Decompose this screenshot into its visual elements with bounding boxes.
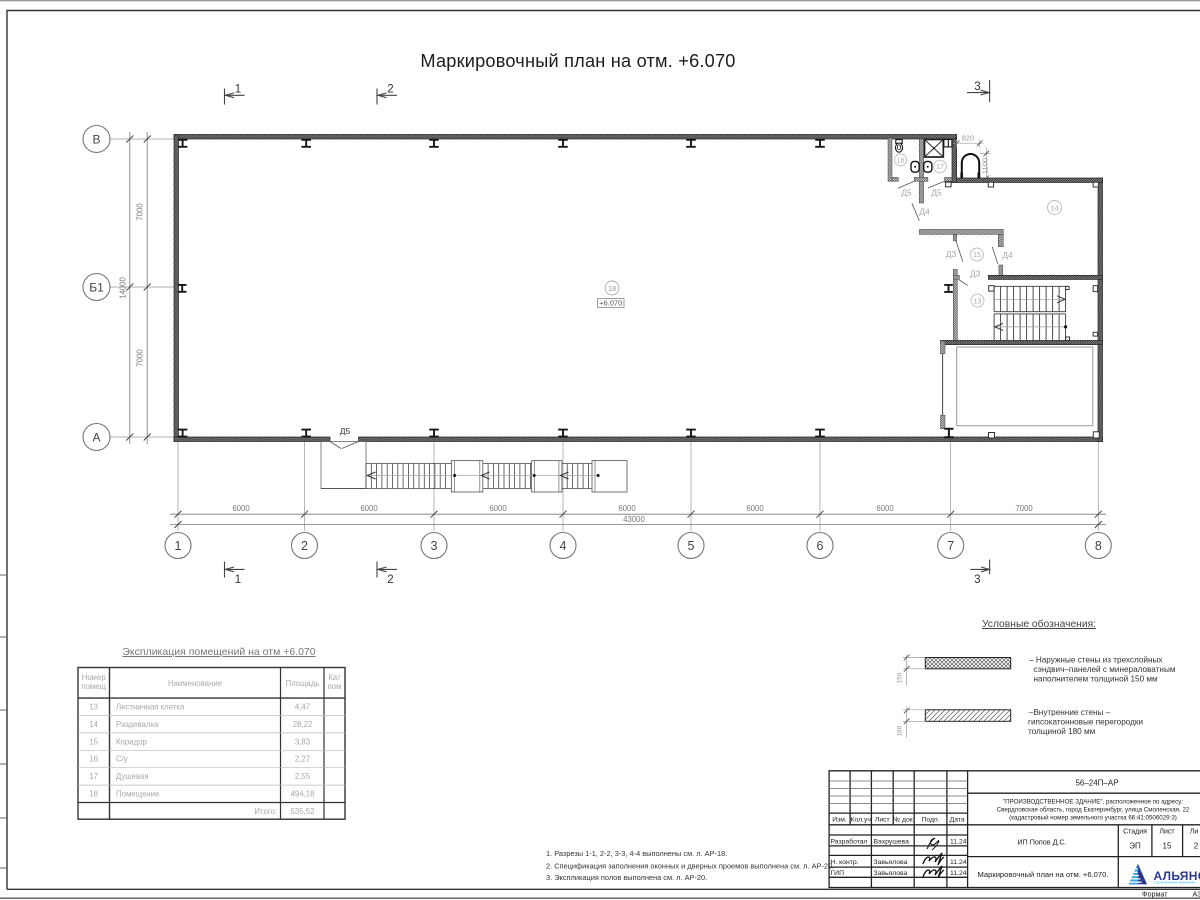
svg-text:3. Экспликация полов выполнена: 3. Экспликация полов выполнена см. л. АР… xyxy=(546,873,707,882)
svg-text:Д4: Д4 xyxy=(1002,250,1013,260)
svg-text:А: А xyxy=(92,431,100,445)
svg-text:Условные обозначения:: Условные обозначения: xyxy=(982,618,1096,630)
svg-text:Душевая: Душевая xyxy=(116,772,149,781)
svg-text:Изм.: Изм. xyxy=(832,817,847,824)
svg-text:5: 5 xyxy=(688,539,695,553)
svg-text:ЭП: ЭП xyxy=(1129,842,1141,851)
svg-text:14: 14 xyxy=(1050,203,1058,212)
svg-text:сэндвич–панелей с минераловатн: сэндвич–панелей с минераловатным xyxy=(1034,665,1176,674)
svg-text:14000: 14000 xyxy=(119,276,128,298)
svg-text:1: 1 xyxy=(235,84,241,96)
svg-text:535,52: 535,52 xyxy=(291,807,315,816)
svg-text:6000: 6000 xyxy=(489,504,507,513)
svg-text:Коридор: Коридор xyxy=(116,737,147,746)
svg-text:Помещение: Помещение xyxy=(116,790,159,799)
svg-text:Завьялова: Завьялова xyxy=(874,859,908,866)
svg-text:1100: 1100 xyxy=(981,158,990,174)
svg-text:Вахрушева: Вахрушева xyxy=(874,838,910,845)
svg-text:1: 1 xyxy=(175,539,182,553)
svg-text:Наименование: Наименование xyxy=(168,679,222,688)
svg-text:14: 14 xyxy=(89,720,98,729)
svg-text:ГИП: ГИП xyxy=(831,870,845,877)
svg-text:4,47: 4,47 xyxy=(295,703,310,712)
svg-text:Номер: Номер xyxy=(82,673,107,682)
svg-text:6: 6 xyxy=(817,539,824,553)
svg-text:18: 18 xyxy=(89,790,98,799)
svg-text:6000: 6000 xyxy=(746,504,764,513)
svg-text:7000: 7000 xyxy=(1015,504,1033,513)
svg-text:ИП Попов Д.С.: ИП Попов Д.С. xyxy=(1017,838,1066,847)
svg-text:18: 18 xyxy=(608,284,616,293)
svg-text:17: 17 xyxy=(89,772,98,781)
svg-text:17: 17 xyxy=(936,164,944,171)
svg-text:№ док.: № док. xyxy=(893,817,915,824)
svg-text:Кат: Кат xyxy=(328,673,341,682)
svg-text:толщиной 180 мм: толщиной 180 мм xyxy=(1028,727,1096,736)
svg-text:3,83: 3,83 xyxy=(295,737,310,746)
svg-text:11.24: 11.24 xyxy=(950,870,967,877)
svg-text:2,55: 2,55 xyxy=(295,772,311,781)
svg-text:15: 15 xyxy=(89,737,98,746)
svg-text:11.24: 11.24 xyxy=(950,838,967,845)
svg-text:–Внутренние стены –: –Внутренние стены – xyxy=(1029,708,1111,717)
svg-text:15: 15 xyxy=(973,252,981,259)
svg-text:Завьялова: Завьялова xyxy=(874,870,908,877)
svg-text:Разработал: Разработал xyxy=(831,837,868,845)
svg-text:А3: А3 xyxy=(1193,889,1200,898)
svg-text:6000: 6000 xyxy=(876,504,894,513)
svg-text:2: 2 xyxy=(301,539,308,553)
svg-text:11.24: 11.24 xyxy=(950,859,967,866)
svg-text:Формат: Формат xyxy=(1142,889,1168,898)
svg-text:Стадия: Стадия xyxy=(1123,829,1147,836)
svg-text:2,27: 2,27 xyxy=(295,755,310,764)
svg-text:15: 15 xyxy=(1163,842,1172,851)
svg-text:Б1: Б1 xyxy=(89,281,104,295)
svg-text:7000: 7000 xyxy=(136,203,145,221)
svg-text:Лестничная клетка: Лестничная клетка xyxy=(116,703,185,712)
svg-text:180: 180 xyxy=(897,725,904,736)
svg-text:строительная компания: строительная компания xyxy=(1154,880,1196,884)
svg-text:6000: 6000 xyxy=(360,504,378,513)
svg-text:(кадастровый номер земельного: (кадастровый номер земельного участка 66… xyxy=(1009,815,1177,822)
svg-text:гипсокатонновые перегородки: гипсокатонновые перегородки xyxy=(1028,718,1143,727)
svg-text:3: 3 xyxy=(974,81,980,93)
svg-text:Свердловская область, город Ек: Свердловская область, город Екатеринбург… xyxy=(997,807,1190,814)
svg-text:+6.070: +6.070 xyxy=(599,299,622,308)
svg-text:Дата: Дата xyxy=(950,817,965,824)
svg-text:Экспликация помещений на отм +: Экспликация помещений на отм +6.070 xyxy=(122,646,315,658)
svg-text:пом: пом xyxy=(328,682,342,691)
svg-text:Д5: Д5 xyxy=(901,188,912,198)
svg-text:Лист: Лист xyxy=(875,817,890,824)
svg-text:7000: 7000 xyxy=(136,349,145,367)
svg-text:3: 3 xyxy=(431,539,438,553)
svg-text:Д3: Д3 xyxy=(970,269,981,279)
svg-text:2: 2 xyxy=(1194,842,1199,851)
svg-text:13: 13 xyxy=(974,298,982,305)
svg-text:7: 7 xyxy=(947,539,954,553)
svg-text:Н. контр.: Н. контр. xyxy=(831,859,859,866)
svg-text:2: 2 xyxy=(387,84,393,96)
svg-text:Площадь: Площадь xyxy=(286,679,320,688)
svg-text:16: 16 xyxy=(89,755,98,764)
svg-text:3: 3 xyxy=(974,574,980,586)
svg-text:Д5: Д5 xyxy=(340,426,351,436)
svg-text:1: 1 xyxy=(235,574,241,586)
svg-text:Кол.уч: Кол.уч xyxy=(851,817,872,824)
svg-text:4: 4 xyxy=(560,539,567,553)
svg-text:2: 2 xyxy=(387,574,393,586)
svg-text:– Наружные стены из трехслойны: – Наружные стены из трехслойных xyxy=(1029,656,1163,665)
svg-text:"ПРОИЗВОДСТВЕННОЕ ЗДАНИЕ", рас: "ПРОИЗВОДСТВЕННОЕ ЗДАНИЕ", расположенное… xyxy=(1003,799,1183,806)
svg-text:820: 820 xyxy=(962,134,975,143)
svg-text:8: 8 xyxy=(1095,539,1102,553)
svg-text:Маркировочный план на отм. +6.: Маркировочный план на отм. +6.070. xyxy=(978,870,1109,879)
svg-text:Д3: Д3 xyxy=(946,249,957,259)
svg-text:Маркировочный план на отм. +6.: Маркировочный план на отм. +6.070 xyxy=(420,51,735,71)
svg-text:наполнителем толщиной 150 мм: наполнителем толщиной 150 мм xyxy=(1034,675,1159,684)
svg-text:43000: 43000 xyxy=(623,515,645,524)
svg-text:В: В xyxy=(92,133,100,147)
svg-text:56–24П–АР: 56–24П–АР xyxy=(1075,779,1118,788)
svg-text:Ли: Ли xyxy=(1190,829,1199,836)
svg-text:С/у: С/у xyxy=(116,755,128,764)
svg-text:Итого:: Итого: xyxy=(254,807,277,816)
svg-text:1. Разрезы 1-1, 2-2, 3-3, 4-4: 1. Разрезы 1-1, 2-2, 3-3, 4-4 выполнены … xyxy=(546,849,727,858)
svg-text:13: 13 xyxy=(89,703,98,712)
svg-text:Подп.: Подп. xyxy=(921,817,939,824)
svg-text:28,22: 28,22 xyxy=(293,720,313,729)
svg-text:Лист: Лист xyxy=(1159,829,1175,836)
svg-text:помещ: помещ xyxy=(81,682,106,691)
svg-text:150: 150 xyxy=(897,672,904,683)
svg-text:Д4: Д4 xyxy=(919,207,930,217)
svg-text:Раздевалка: Раздевалка xyxy=(116,720,159,729)
svg-text:Д5: Д5 xyxy=(931,188,942,198)
svg-text:6000: 6000 xyxy=(618,504,636,513)
svg-text:494,18: 494,18 xyxy=(291,790,315,799)
svg-text:2. Спецификация заполнения око: 2. Спецификация заполнения оконных и две… xyxy=(546,862,834,871)
svg-text:6000: 6000 xyxy=(232,504,250,513)
svg-text:16: 16 xyxy=(897,158,905,165)
